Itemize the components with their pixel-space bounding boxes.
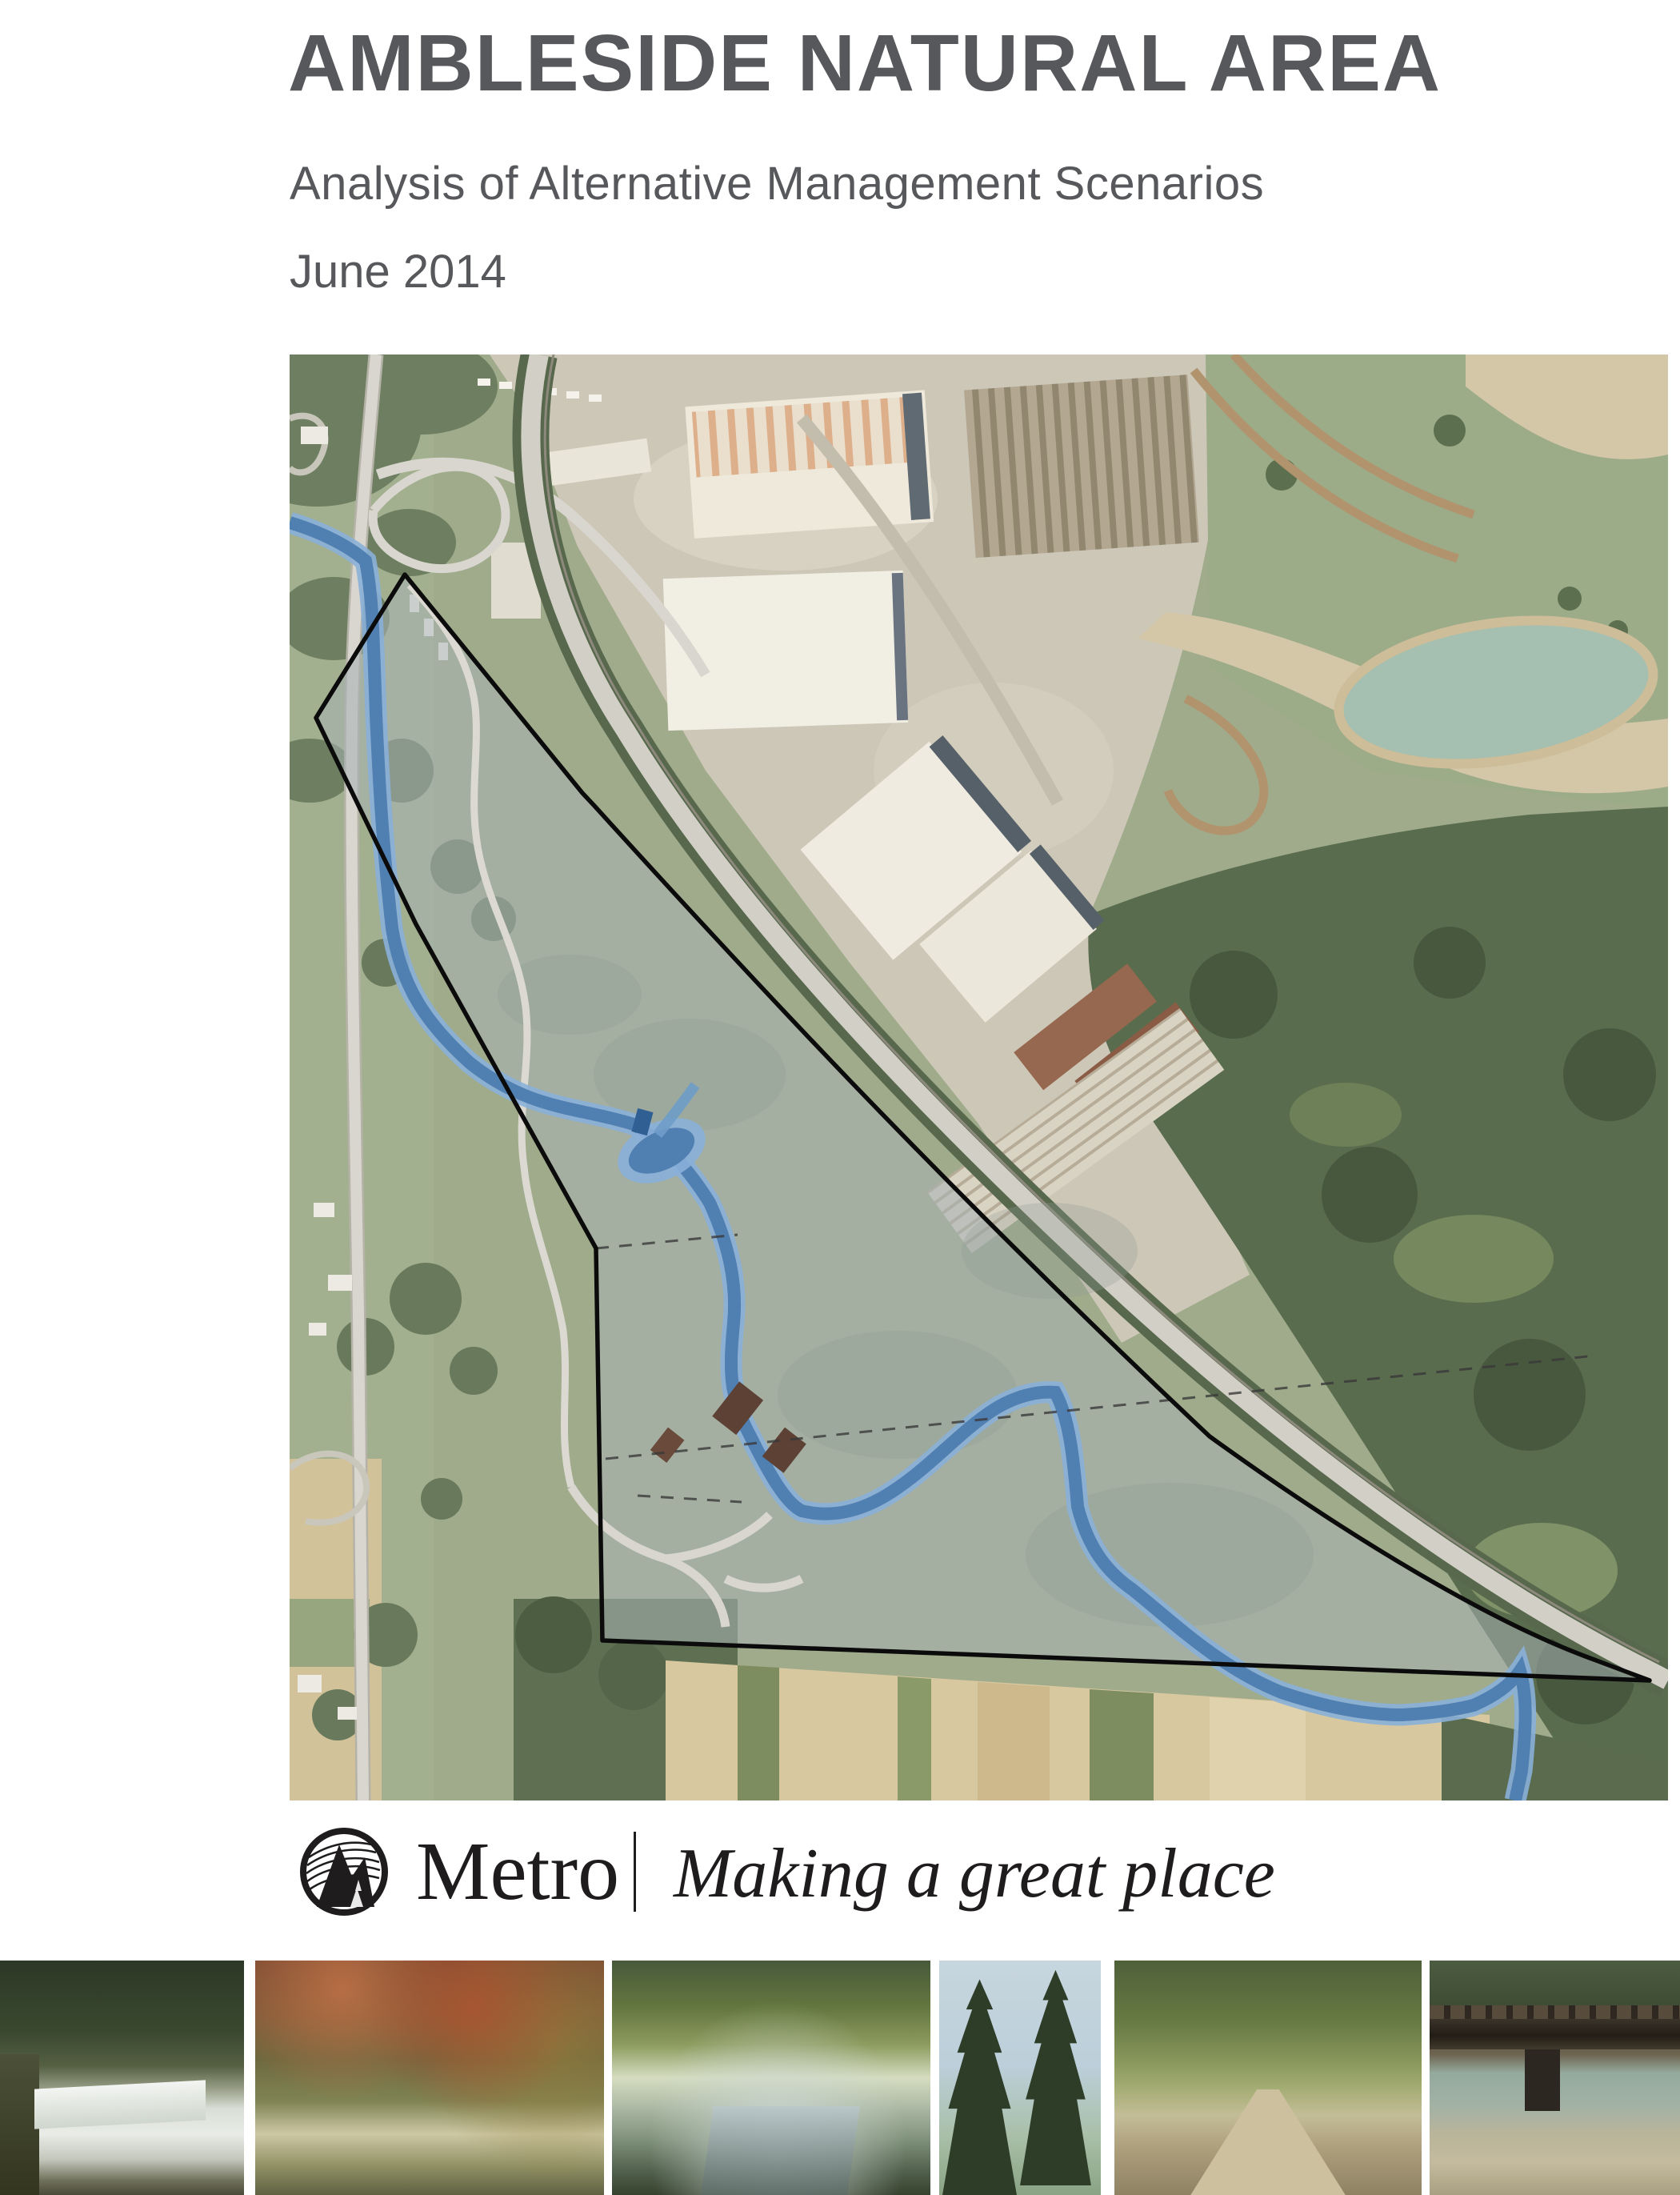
stream-bank [0, 2054, 39, 2195]
aerial-map-graphic [290, 354, 1668, 1800]
lumber-rows [964, 375, 1199, 558]
conifer-silhouette [942, 1979, 1017, 2195]
photo-bridge-creek [1430, 1961, 1680, 2195]
bridge-deck [1430, 2019, 1680, 2049]
report-cover-page: AMBLESIDE NATURAL AREA Analysis of Alter… [0, 0, 1680, 2195]
page-subtitle: Analysis of Alternative Management Scena… [290, 157, 1264, 210]
photo-conifers [939, 1961, 1101, 2195]
photo-green-creek [612, 1961, 930, 2195]
gravel-path [1176, 2089, 1360, 2195]
creek-water [702, 2106, 861, 2195]
logo-divider [634, 1832, 636, 1912]
bridge-railing [1430, 2005, 1680, 2020]
conifer-silhouette [1020, 1970, 1091, 2186]
document-date: June 2014 [290, 245, 506, 298]
aerial-map [290, 354, 1668, 1800]
bridge-pier [1525, 2049, 1560, 2110]
brand-name: Metro [416, 1825, 619, 1918]
brand-tagline: Making a great place [674, 1825, 1275, 1918]
metro-logo-icon [298, 1825, 390, 1918]
page-title: AMBLESIDE NATURAL AREA [288, 18, 1442, 110]
photo-stream-weir [0, 1961, 244, 2195]
waterfall-weir [34, 2081, 206, 2129]
photo-autumn-maples [255, 1961, 604, 2195]
photo-tree-lined-path [1114, 1961, 1422, 2195]
